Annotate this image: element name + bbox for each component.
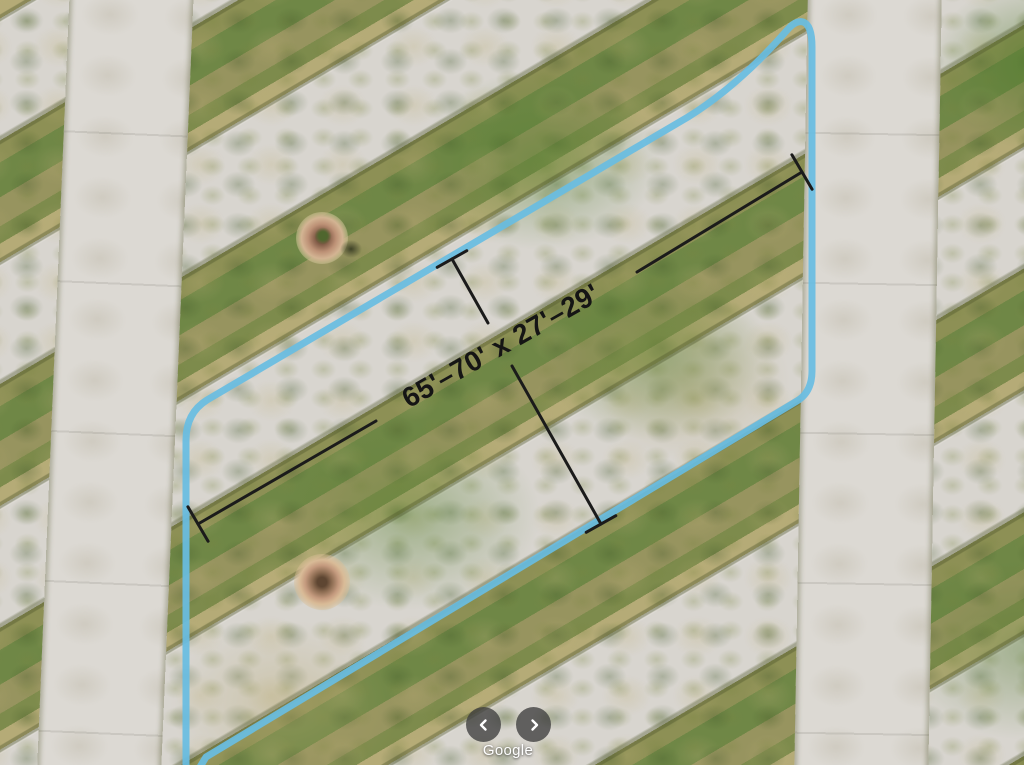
chevron-right-icon [527,718,541,732]
previous-image-button[interactable] [466,707,501,742]
aerial-map-view[interactable]: 65'–70' x 27'–29' Google [0,0,1024,765]
google-watermark: Google [483,742,533,759]
next-image-button[interactable] [516,707,551,742]
property-outline [186,22,812,765]
chevron-left-icon [477,718,491,732]
annotation-overlay [0,0,1024,765]
